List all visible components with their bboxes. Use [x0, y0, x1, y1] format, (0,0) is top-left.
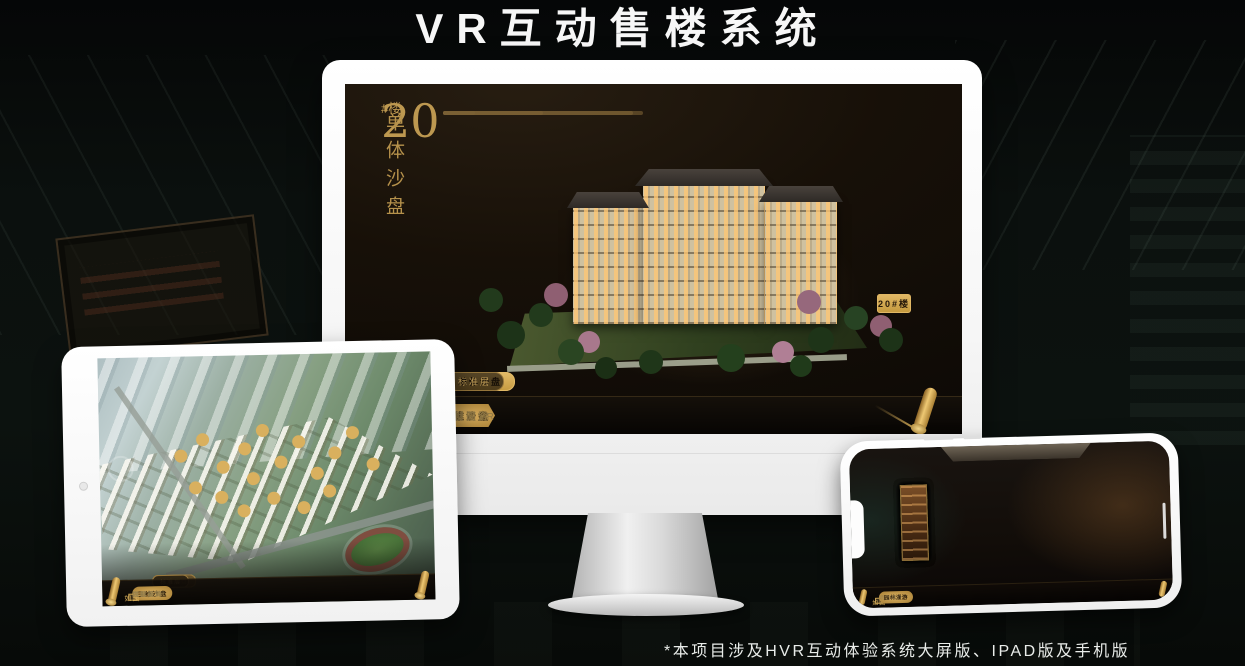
building-roof — [567, 192, 649, 208]
tablet-screen: 项目沙盘 单体沙盘 标准层 区位交通 三维沙盘 样板间VR 如园 户型鉴赏 园林… — [97, 351, 435, 606]
camera-icon — [79, 482, 88, 491]
power-button — [964, 436, 982, 440]
building-roof — [635, 169, 773, 186]
bg-cityscape-right — [1130, 135, 1245, 445]
tablet-navbar: 区位交通 三维沙盘 样板间VR 如园 户型鉴赏 园林漫游 项目简介 — [102, 573, 435, 606]
phone-device: 区位交通 三维沙盘 样板间VR 如园 户型鉴赏 园林漫游 项目简介 — [840, 432, 1183, 616]
scene-panel[interactable] — [900, 484, 929, 561]
landscape-trees — [345, 84, 357, 96]
nav-item-project-intro[interactable]: 项目简介 — [132, 588, 162, 599]
phone-notch — [850, 500, 865, 558]
building-render — [643, 184, 765, 324]
tablet-device: 项目沙盘 单体沙盘 标准层 区位交通 三维沙盘 样板间VR 如园 户型鉴赏 园林… — [61, 339, 460, 627]
interior-ceiling-beam — [941, 443, 1091, 462]
nav-item-project-intro[interactable]: 项目简介 — [879, 593, 903, 602]
poster-canvas: VR互动售楼系统 20#楼 单体沙盘 — [0, 0, 1245, 666]
building-roof — [759, 186, 843, 202]
phone-navbar: 区位交通 三维沙盘 样板间VR 如园 户型鉴赏 园林漫游 项目简介 — [853, 579, 1173, 609]
home-indicator — [1162, 502, 1166, 538]
volume-button — [924, 437, 954, 441]
unit-subtitle-vertical: 单体沙盘 — [381, 112, 408, 262]
floor-button-20[interactable]: 20#楼 — [877, 294, 911, 313]
description-line — [443, 111, 543, 115]
bg-certificate-plaque — [55, 214, 268, 359]
monitor-stand-neck — [572, 513, 718, 599]
building-wing-left — [573, 206, 643, 324]
building-wing-right — [765, 200, 837, 324]
monitor-stand-base — [548, 594, 744, 616]
footnote: *本项目涉及HVR互动体验系统大屏版、IPAD版及手机版 — [664, 637, 1130, 661]
page-title: VR互动售楼系统 — [0, 0, 1245, 58]
phone-screen: 区位交通 三维沙盘 样板间VR 如园 户型鉴赏 园林漫游 项目简介 — [849, 441, 1173, 609]
